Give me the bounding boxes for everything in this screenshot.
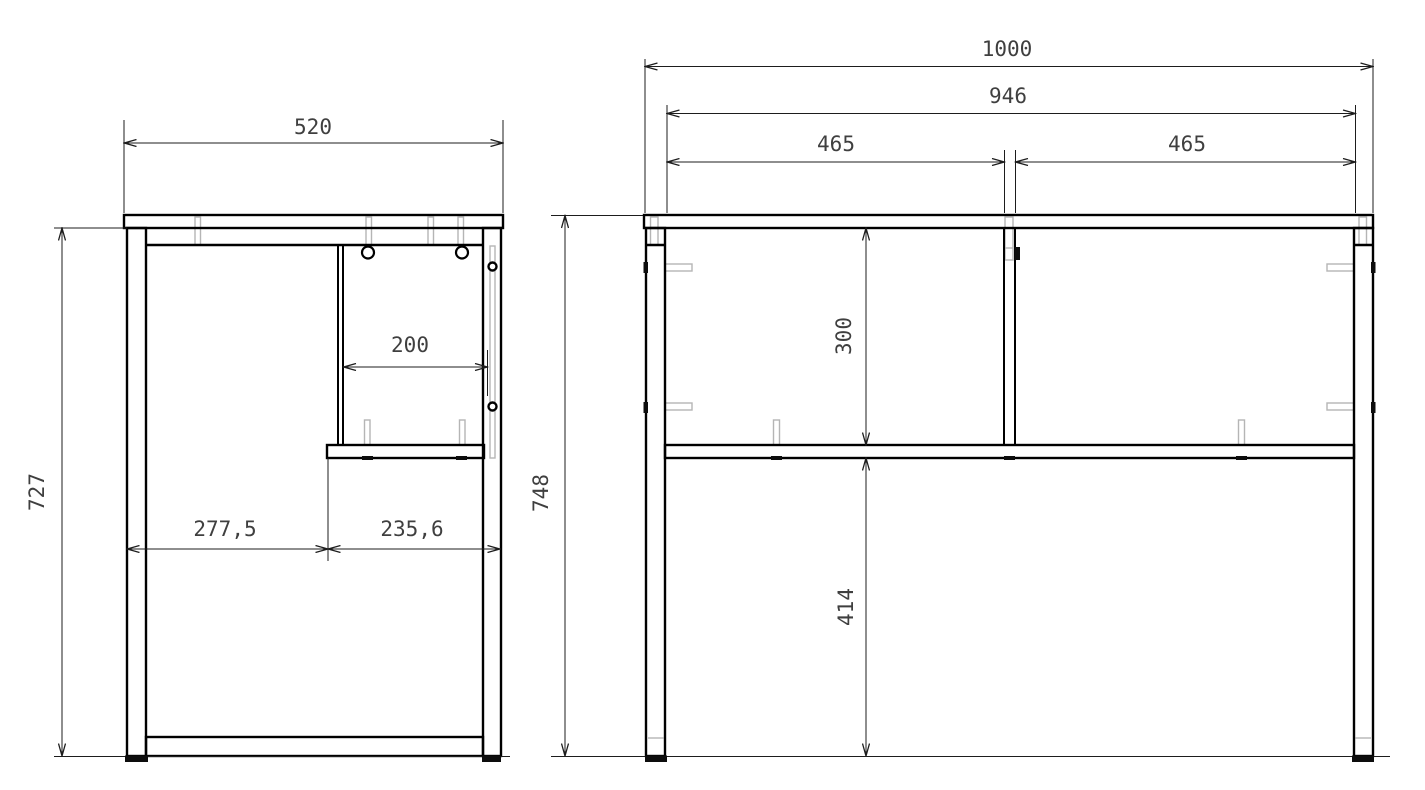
vertical-panel [338,245,343,445]
foot-pad [1352,756,1374,763]
technical-drawing-canvas: 520 200 277,5 235,6 727 748 [0,0,1425,790]
bottom-stretcher [146,737,483,756]
dowel-pin [195,217,201,245]
dim-side-panel-offset: 200 [344,333,488,396]
side-dowel [665,403,692,410]
dim-label-277-5: 277,5 [193,517,256,541]
foot-pad [482,756,501,763]
right-leg-side [483,228,501,756]
dowel-pin [1359,217,1367,245]
right-leg-front [1354,228,1373,756]
dim-label-414: 414 [834,588,858,626]
dimensions: 520 200 277,5 235,6 727 748 [25,37,1373,756]
divider-dowel [1005,217,1013,260]
connector-mark [771,456,782,460]
dim-label-748: 748 [529,474,553,512]
side-dowel [1327,403,1354,410]
dowel-pin [366,217,372,245]
dim-label-946: 946 [989,84,1027,108]
connector-mark [644,262,649,273]
connector-mark [644,402,649,413]
tabletop-side [124,215,503,228]
shelf-dowel [774,420,780,445]
dim-label-300: 300 [832,317,856,355]
connector-mark [1236,456,1247,460]
screw-hole [362,247,374,259]
dim-side-leg-height: 727 [25,228,127,756]
side-view-hidden-details [195,217,495,458]
dim-side-bays: 277,5 235,6 [127,458,500,561]
dim-front-overall-height: 748 [529,216,643,757]
dowel-pin [458,217,464,245]
dim-label-465-right: 465 [1168,132,1206,156]
dim-label-520: 520 [294,115,332,139]
dim-label-1000: 1000 [982,37,1033,61]
left-leg-front [646,228,665,756]
shelf-dowel [365,420,371,445]
connector-mark [456,456,467,460]
dim-front-inner-width: 946 [667,84,1356,213]
dim-front-overall-width: 1000 [645,37,1373,213]
dowel-end [489,263,497,271]
connector-mark [362,456,373,460]
front-view [551,215,1390,762]
dowel-end [489,403,497,411]
side-view [54,215,510,762]
drawing-svg: 520 200 277,5 235,6 727 748 [0,0,1425,790]
dim-front-shelf-to-floor: 414 [834,458,866,756]
dim-front-top-to-shelf: 300 [832,228,866,445]
connector-mark [1004,456,1015,460]
dim-label-727: 727 [25,473,49,511]
foot-pad [645,756,667,763]
hidden-rail-edge [490,246,495,458]
shelf-dowel [460,420,466,445]
front-view-hidden-details [648,217,1371,738]
side-dowel [1327,264,1354,271]
divider-connector [1015,247,1021,260]
foot-pad [125,756,148,763]
dim-label-200: 200 [391,333,429,357]
left-leg-side [127,228,146,756]
side-dowel [665,264,692,271]
dim-label-465-left: 465 [817,132,855,156]
dim-side-top-width: 520 [124,115,503,213]
connector-mark [1371,262,1376,273]
connector-mark [1371,402,1376,413]
dim-label-235-6: 235,6 [380,517,443,541]
dowel-pin [428,217,434,245]
shelf-dowel [1239,420,1245,445]
screw-hole [456,247,468,259]
dowel-pin [651,217,659,245]
dim-front-bays: 465 465 [667,132,1356,213]
